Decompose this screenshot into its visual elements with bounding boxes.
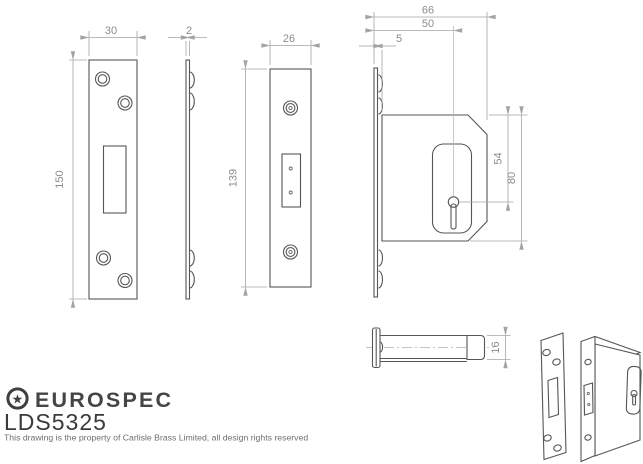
dim-label-bolt-height: 16	[490, 341, 502, 353]
view-bolt-side: 16	[366, 328, 511, 368]
forend-edge-outline	[374, 68, 378, 297]
dim-label-keyhole-centre: 54	[493, 152, 505, 164]
title-block: ★ EUROSPEC LDS5325 This drawing is the p…	[4, 388, 308, 443]
copyright-text: This drawing is the property of Carlisle…	[4, 433, 308, 443]
eurospec-star-icon: ★	[8, 389, 27, 408]
dim-faceplate-to-case: 5	[359, 33, 402, 112]
dim-label-plate-thickness: 2	[186, 25, 192, 37]
faceplate-edge-outline	[186, 60, 190, 299]
dim-label-case-height: 80	[506, 172, 518, 184]
dim-label-forend-width: 26	[283, 33, 295, 45]
dim-plate-width: 30	[89, 25, 137, 56]
technical-drawing-page: 30 150 2	[0, 0, 643, 464]
dim-label-faceplate-to-case: 5	[396, 33, 402, 45]
dim-label-plate-width: 30	[105, 25, 117, 37]
dim-label-forend-height: 139	[228, 169, 240, 187]
fixing-tab	[190, 250, 195, 266]
dim-label-backset: 50	[422, 18, 434, 30]
forend-outline	[270, 69, 311, 287]
star-glyph: ★	[12, 393, 24, 408]
view-case-side: 66 50 5 54 80	[359, 5, 528, 298]
fixing-tab	[190, 72, 195, 88]
bolt-shaft	[380, 336, 467, 362]
view-faceplate-edge: 2	[168, 25, 207, 299]
dim-bolt-height: 16	[487, 336, 511, 360]
dim-backset: 50	[374, 18, 454, 31]
dim-label-case-depth: 66	[422, 5, 434, 17]
fixing-tab	[379, 271, 383, 288]
fixing-tab	[379, 250, 383, 266]
lock-technical-drawing: 30 150 2	[0, 0, 643, 464]
fixing-tab	[190, 271, 195, 288]
view-iso-faceplate	[541, 333, 566, 460]
model-code: LDS5325	[4, 409, 107, 435]
dim-forend-width: 26	[270, 33, 311, 65]
fixing-tab	[190, 93, 195, 110]
bolt-head	[467, 336, 485, 360]
dim-plate-height: 150	[54, 60, 87, 299]
view-iso-lock	[581, 337, 641, 462]
view-faceplate-front: 30 150	[54, 25, 137, 299]
dim-plate-thickness: 2	[168, 25, 207, 56]
view-forend-front: 26 139	[228, 33, 312, 287]
faceplate-outline	[89, 60, 137, 299]
dim-label-plate-height: 150	[54, 170, 66, 188]
dim-forend-height: 139	[228, 69, 268, 287]
